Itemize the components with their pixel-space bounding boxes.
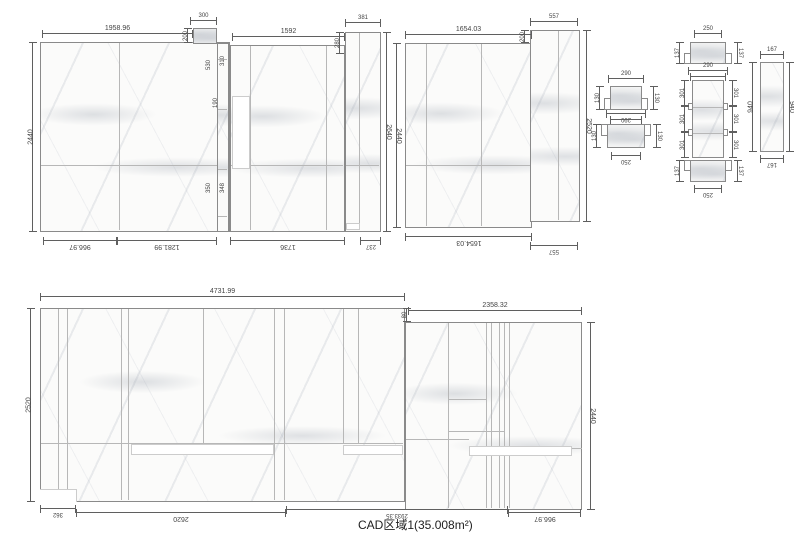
slab-top-left [40,42,230,232]
dim-label: 237 [365,243,375,249]
channel-tab [604,98,611,110]
dim-label: 1654.03 [456,239,481,246]
cutout [131,444,274,455]
dim-label: 130 [592,131,598,141]
dim-strip-2: 310 [220,56,226,66]
dim-label: 2358.32 [482,302,507,309]
dim-c-rise: 200 [524,30,525,43]
dim-s-left: 940 [752,62,753,152]
dim-label: 1281.99 [154,243,179,250]
dim-label: 301 [732,114,738,124]
dim-label: 250 [703,191,713,197]
seam [218,216,227,217]
dim-label: 200 [183,30,189,40]
dim-rcol-top: 290 [690,76,726,77]
dim-label: 290 [621,71,631,77]
dim-label: 301 [732,140,738,150]
stack-column [692,80,724,158]
dim-label: 2440 [396,128,403,144]
dim-label: 137 [675,166,681,176]
seam [486,323,487,508]
dim-label: 940 [789,101,794,113]
seam [343,309,344,443]
dim-c-bottom: 1654.03 [405,236,532,237]
dim-rseg-l3: 301 [684,132,685,158]
dim-strip-3: 190 [213,98,219,108]
dim-label: 130 [656,131,662,141]
seam [448,399,486,400]
dim-rcap2-right: 137 [737,160,738,182]
seam [326,46,327,230]
dim-label: 250 [621,158,631,164]
seam [58,309,59,500]
channel-piece-1 [610,86,642,110]
seam [203,309,204,443]
dim-a-bottom-1: 966.97 [43,240,117,241]
dim-strip-4: 350 [206,183,212,193]
dim-label: 2440 [590,408,597,424]
dim-d-left: 2520 [30,308,31,502]
cutout [469,446,572,456]
dim-rseg-r3: 301 [732,132,733,158]
dim-a-notch-width: 300 [190,20,217,21]
slab-c-column [530,30,580,222]
dim-s-bottom: 167 [760,158,784,159]
slab-bottom-extension [405,322,582,510]
dim-label: 301 [680,114,686,124]
dim-d-bottom-3: 966.97 [508,512,581,513]
dim-label: 557 [549,248,559,254]
dim-label: 80 [402,312,408,319]
cad-canvas: 1958.96 2440 300 200 966.97 1281.99 530 … [0,0,794,540]
dim-label: 2640 [386,124,393,140]
dim-d-bottom-1: 2620 [76,512,286,513]
dim-rcap-left: 137 [679,42,680,64]
seam [121,309,122,500]
dim-label: 2620 [173,515,189,522]
dim-d-top: 4731.99 [40,296,405,297]
strip-piece [217,43,229,232]
tall-piece [760,62,784,152]
dim-m2-right: 130 [656,124,657,148]
dim-rcap-top: 250 [694,33,722,34]
dim-rseg-r2: 301 [732,106,733,132]
dim-b-bottom-1: 1736 [230,240,345,241]
dim-label: 137 [675,48,681,58]
slab-a-notch [193,28,217,44]
seam [359,33,360,230]
channel-tab [644,124,651,136]
dim-label: 300 [198,13,208,19]
dim-m2-bottom: 250 [611,155,641,156]
seam [448,431,504,432]
dim-s-top: 167 [760,54,784,55]
dim-label: 301 [732,88,738,98]
dim-m2-left: 130 [596,124,597,148]
seam [274,309,275,500]
dim-rcap2-left: 137 [679,160,680,182]
seam [218,109,227,110]
dim-label: 1654.03 [456,26,481,33]
dim-m1-bottom-2: 250 [610,119,642,120]
dim-a-bottom-2: 1281.99 [117,240,217,241]
dim-label: 2520 [26,397,33,413]
seam [218,169,227,170]
slab-top-middle [230,45,345,232]
dim-label: 1958.96 [105,25,130,32]
seam [558,31,559,220]
step-notch [40,489,77,502]
dim-label: 966.97 [534,515,555,522]
slab-bottom-main [40,308,405,502]
dim-a-left: 2440 [32,42,33,232]
dim-label: 381 [358,15,368,21]
cutout [346,223,360,230]
dim-c-top: 1654.03 [405,34,532,35]
seam [406,165,530,166]
stack-cap-top [690,42,726,64]
seam [119,43,120,230]
dim-label: 4731.99 [210,288,235,295]
dim-label: 290 [703,63,713,69]
dim-label: 130 [653,93,659,103]
dim-b-col-right: 2640 [386,32,387,232]
channel-tab [725,160,732,171]
channel-tab [723,129,728,136]
slab-top-right [405,43,532,228]
dim-d-step: 80 [406,308,407,322]
seam [693,133,723,134]
dim-label: 137 [737,48,743,58]
channel-tab [723,103,728,110]
dim-a-notch-height: 200 [187,28,188,43]
dim-label: 940 [748,101,755,113]
dim-label: 557 [549,14,559,20]
dim-label: 2440 [28,129,35,145]
seam [250,46,251,230]
dim-b-col-top: 381 [345,22,381,23]
dim-rcap-bottom: 290 [688,70,728,71]
dim-a-top: 1958.96 [42,33,193,34]
seam [693,107,723,108]
dim-d-bottom-2: 2933.35 [286,509,508,510]
channel-piece-2 [607,124,645,148]
dim-label: 301 [680,140,686,150]
dim-m1-top: 290 [608,78,644,79]
dim-label: 301 [680,88,686,98]
dim-label: 167 [767,161,777,167]
dim-c-col-bottom: 557 [530,245,578,246]
dim-m1-right: 130 [653,86,654,110]
dim-rseg-r1: 301 [732,80,733,106]
dim-label: 362 [53,511,63,517]
seam [481,44,482,226]
dim-label: 280 [335,38,341,48]
seam [128,309,129,500]
cutout [343,445,403,455]
dim-strip-1: 530 [206,60,212,70]
seam [406,439,469,440]
seam [67,309,68,500]
dim-d-bottom-step: 362 [40,508,76,509]
dim-rcap-right: 137 [737,42,738,64]
dim-rseg-l1: 301 [684,80,685,106]
dim-s-right: 940 [789,62,790,152]
dim-label: 167 [767,47,777,53]
area-title: CAD区域1(35.008m²) [358,516,473,533]
dim-c-col-right: 2520 [586,30,587,222]
seam [499,323,500,508]
dim-label: 1592 [281,28,297,35]
dim-label: 1736 [280,243,296,250]
dim-b-top: 1592 [232,36,345,37]
dim-c-col-top: 557 [530,21,578,22]
dim-rcap2-bottom: 250 [694,188,722,189]
channel-tab [684,160,691,171]
seam [346,165,379,166]
dim-label: 966.97 [69,243,90,250]
channel-tab [684,53,691,64]
seam [448,323,449,508]
dim-d-ext-top: 2358.32 [408,310,582,311]
dim-m1-bottom-1: 290 [606,113,646,114]
dim-b-bottom-2: 237 [360,240,381,241]
seam [504,323,505,508]
stack-cap-bottom [690,160,726,182]
dim-label: 200 [520,31,526,41]
channel-tab [641,98,648,110]
cutout [232,96,250,169]
seam [284,309,285,500]
dim-label: 137 [737,166,743,176]
dim-label: 250 [703,26,713,32]
dim-rseg-l2: 301 [684,106,685,132]
dim-strip-5: 348 [220,183,226,193]
seam [509,323,510,508]
dim-m1-left: 130 [599,86,600,110]
seam [41,165,228,166]
dim-label: 130 [595,93,601,103]
dim-c-left: 2440 [396,43,397,228]
seam [358,309,359,443]
seam [426,44,427,226]
seam [491,323,492,508]
slab-b-column [345,32,381,232]
channel-tab [601,124,608,136]
channel-tab [725,53,732,64]
dim-b-col-rise: 280 [339,32,340,54]
dim-d-right: 2440 [590,322,591,510]
